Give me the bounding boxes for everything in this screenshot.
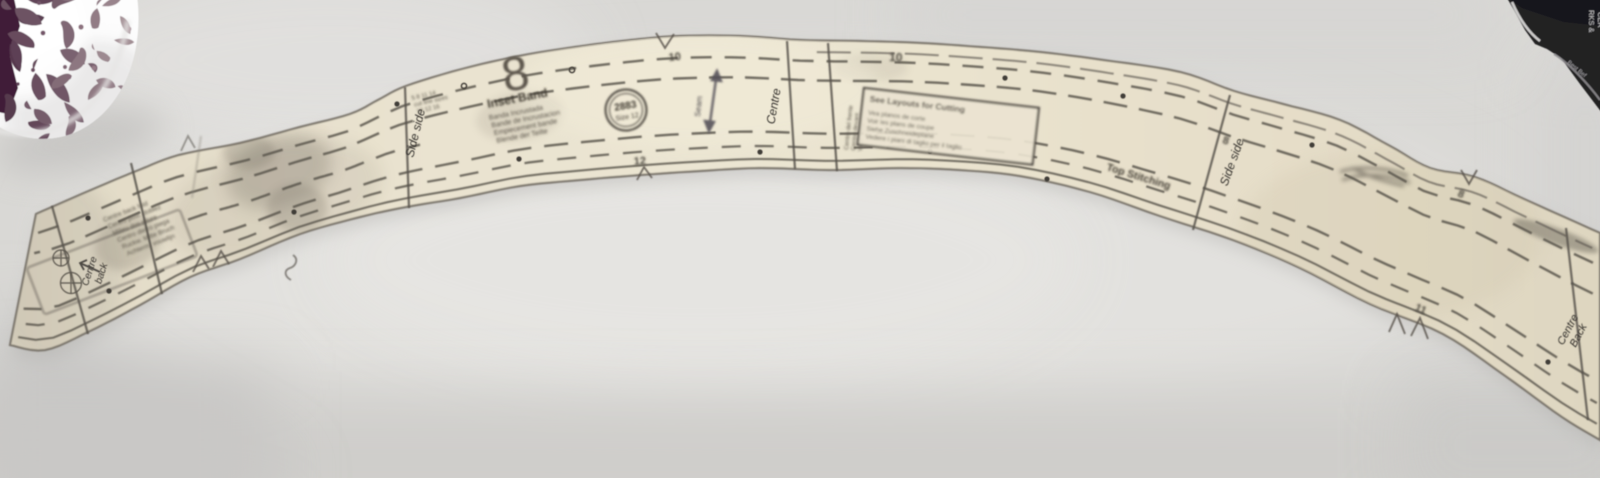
svg-text:12: 12 <box>633 155 646 168</box>
svg-text:10: 10 <box>668 51 681 64</box>
svg-text:10: 10 <box>889 50 903 64</box>
svg-text:RKS &: RKS & <box>1587 10 1596 33</box>
svg-text:CER: CER <box>1596 12 1600 28</box>
